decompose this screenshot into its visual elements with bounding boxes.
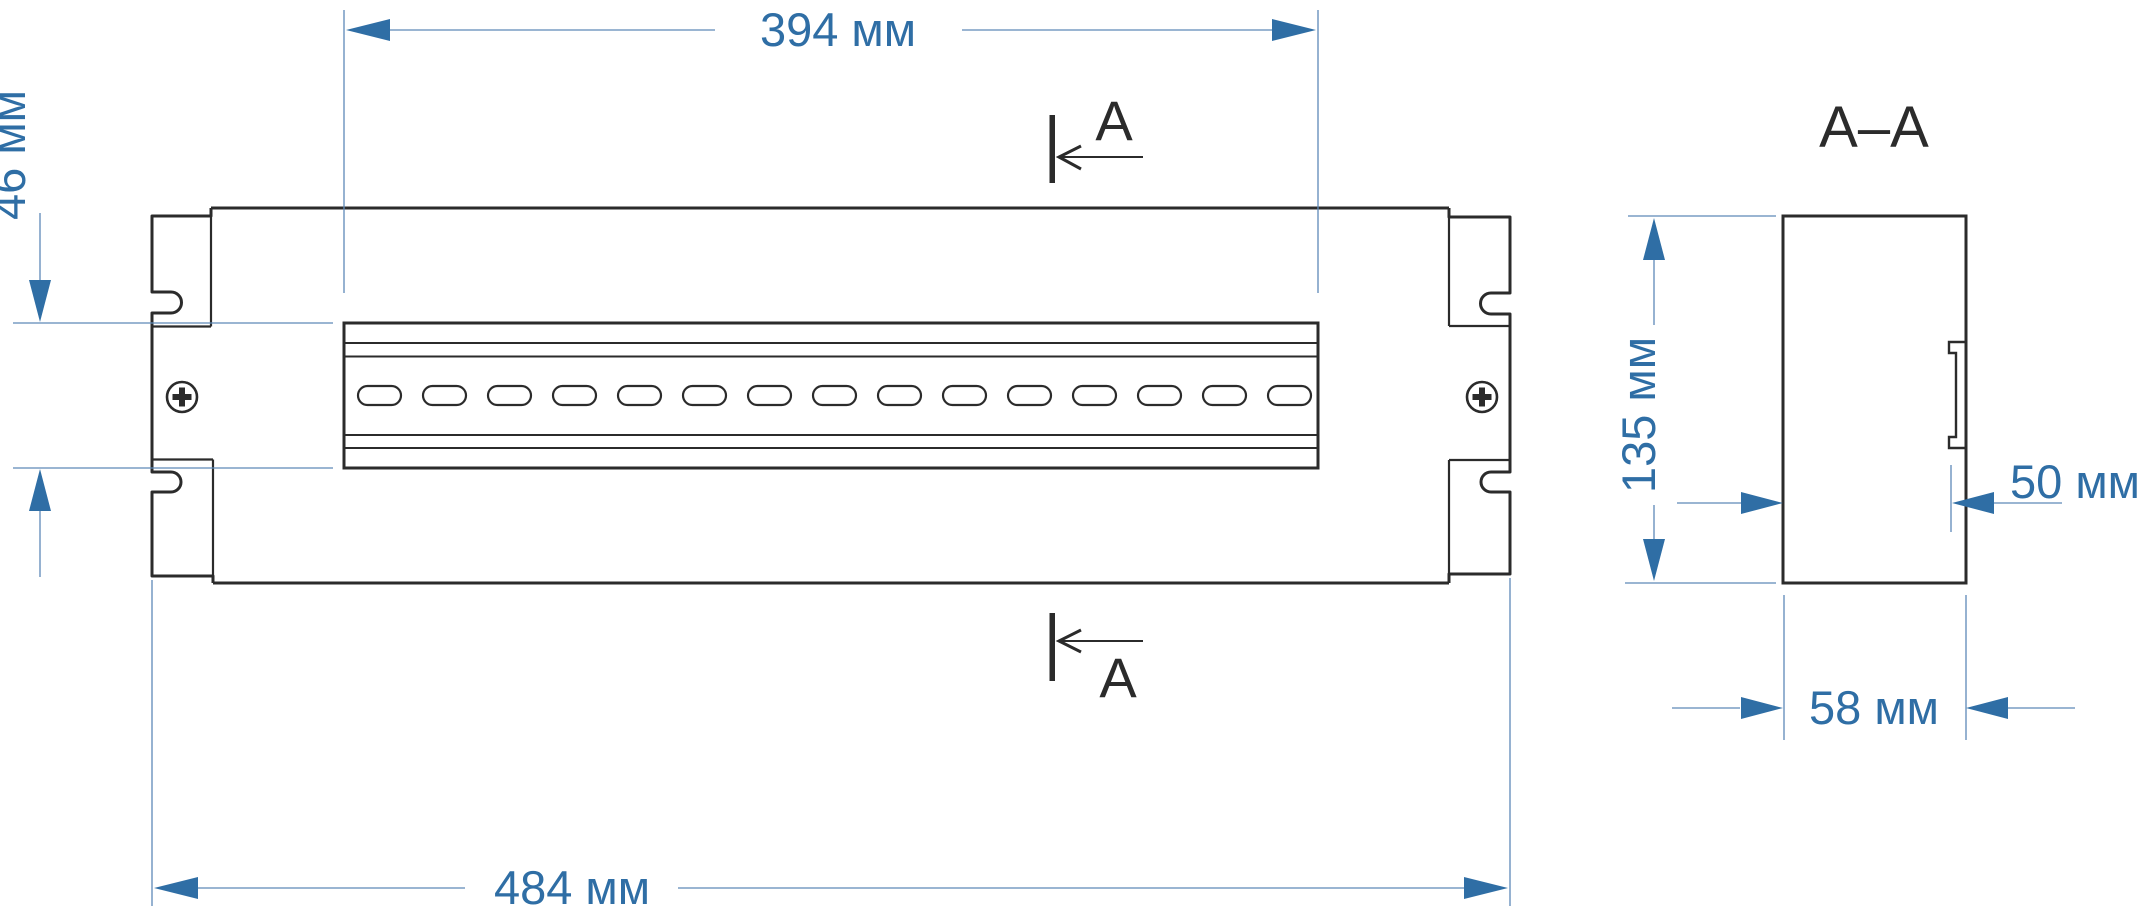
- dimension-arrow-icon: [29, 469, 51, 511]
- rail-slot: [683, 386, 726, 405]
- dimension-bottom-484: 484 мм: [152, 578, 1510, 914]
- dimension-arrow-icon: [1741, 697, 1783, 719]
- section-view: A–A 135 мм 50 мм 58 мм: [1612, 95, 2140, 740]
- rail-slot: [358, 386, 401, 405]
- dim-label-50: 50 мм: [2010, 455, 2140, 508]
- dimension-arrow-icon: [1643, 218, 1665, 260]
- dim-label-58: 58 мм: [1809, 681, 1939, 734]
- dimension-arrow-icon: [1952, 492, 1994, 514]
- dimension-arrow-icon: [154, 877, 198, 899]
- rail-slot: [943, 386, 986, 405]
- ear-edge-top-left: [152, 216, 211, 327]
- rail-slot: [618, 386, 661, 405]
- section-letter-bottom: A: [1099, 646, 1137, 709]
- dimension-top-394: 394 мм: [344, 3, 1318, 293]
- section-title: A–A: [1819, 95, 1929, 160]
- dim-label-46: 46 мм: [0, 90, 35, 220]
- dimension-arrow-icon: [1464, 877, 1508, 899]
- rail-slot: [1268, 386, 1311, 405]
- dimension-arrow-icon: [346, 19, 390, 41]
- dim-label-394: 394 мм: [760, 3, 916, 56]
- phillips-cross-icon: [1473, 388, 1492, 407]
- section-mark-top: A: [1050, 89, 1144, 183]
- ear-edge-bottom-left: [152, 460, 213, 584]
- rail-slot: [748, 386, 791, 405]
- ear-edge-bottom-right: [1449, 460, 1510, 583]
- dimension-left-46: 46 мм: [0, 90, 333, 577]
- ear-edge-top-right: [1449, 217, 1510, 326]
- screw-right: [1467, 382, 1497, 412]
- section-cut-bar: [1050, 115, 1056, 183]
- rail-slot: [1138, 386, 1181, 405]
- dim-label-135: 135 мм: [1612, 337, 1665, 493]
- din-rail-profile: [1949, 342, 1966, 448]
- phillips-cross-icon: [173, 388, 192, 407]
- rail-slot: [813, 386, 856, 405]
- dimension-arrow-icon: [29, 280, 51, 322]
- rail-slot: [488, 386, 531, 405]
- section-cut-bar: [1050, 613, 1056, 681]
- dimension-arrow-icon: [1741, 492, 1783, 514]
- section-letter-top: A: [1095, 89, 1133, 152]
- dimension-depth-50: 50 мм: [1677, 455, 2140, 532]
- section-mark-bottom: A: [1050, 613, 1144, 709]
- extension-line: [152, 578, 1510, 906]
- rail-slot: [1008, 386, 1051, 405]
- rail-slot: [878, 386, 921, 405]
- dimension-arrow-icon: [1966, 697, 2008, 719]
- rail-slot: [1073, 386, 1116, 405]
- rail-slot: [1203, 386, 1246, 405]
- section-body-outline: [1783, 216, 1966, 583]
- din-rail-bend-lines: [344, 343, 1318, 448]
- front-view: [152, 208, 1510, 583]
- dimension-arrow-icon: [1272, 19, 1316, 41]
- technical-drawing-page: A A 394 мм 46 мм 484 мм A–A: [0, 0, 2149, 921]
- din-rail-outline: [344, 323, 1318, 468]
- dimension-height-135: 135 мм: [1612, 216, 1776, 583]
- rail-slot: [553, 386, 596, 405]
- dimension-width-58: 58 мм: [1672, 595, 2075, 740]
- screw-left: [167, 382, 197, 412]
- din-rail-slots: [358, 386, 1311, 405]
- din-bracket-drawing: A A 394 мм 46 мм 484 мм A–A: [0, 0, 2149, 921]
- din-rail-front: [344, 323, 1318, 468]
- rail-slot: [423, 386, 466, 405]
- dim-label-484: 484 мм: [494, 861, 650, 914]
- dimension-arrow-icon: [1643, 539, 1665, 581]
